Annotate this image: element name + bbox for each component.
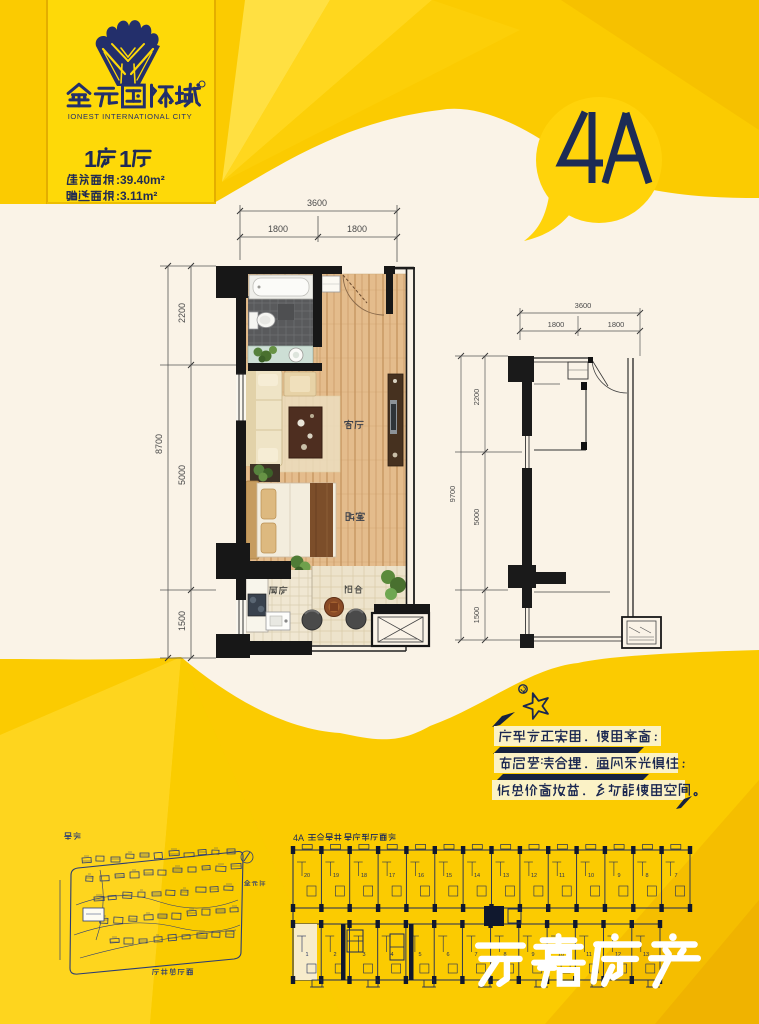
svg-text:17: 17 <box>389 873 395 879</box>
svg-text:5: 5 <box>418 952 421 958</box>
svg-text:6: 6 <box>446 952 449 958</box>
svg-text:8: 8 <box>645 873 648 879</box>
svg-text:4: 4 <box>390 952 393 958</box>
svg-text:5000: 5000 <box>472 509 481 526</box>
svg-text:11: 11 <box>586 952 592 958</box>
svg-text:7: 7 <box>674 873 677 879</box>
svg-text:1800: 1800 <box>608 320 625 329</box>
svg-text:2: 2 <box>333 952 336 958</box>
svg-text:3: 3 <box>362 952 365 958</box>
svg-text:13: 13 <box>503 873 509 879</box>
svg-text:20: 20 <box>304 873 310 879</box>
svg-text:1500: 1500 <box>177 611 187 631</box>
svg-text:1: 1 <box>119 146 132 172</box>
svg-text:1: 1 <box>84 146 97 172</box>
svg-text:9: 9 <box>531 952 534 958</box>
svg-text:14: 14 <box>474 873 480 879</box>
svg-text:10: 10 <box>588 873 594 879</box>
svg-text:11: 11 <box>559 873 565 879</box>
svg-text:16: 16 <box>418 873 424 879</box>
svg-text:9700: 9700 <box>448 486 457 503</box>
svg-text:2200: 2200 <box>177 303 187 323</box>
svg-text:12: 12 <box>531 873 537 879</box>
svg-text:3600: 3600 <box>307 198 327 208</box>
svg-text::3.11m²: :3.11m² <box>116 189 157 203</box>
svg-text:3600: 3600 <box>575 301 592 310</box>
svg-text:18: 18 <box>361 873 367 879</box>
svg-text:1500: 1500 <box>472 607 481 624</box>
svg-text:15: 15 <box>446 873 452 879</box>
svg-text:2200: 2200 <box>472 389 481 406</box>
svg-text:4A: 4A <box>293 833 304 843</box>
svg-text:19: 19 <box>333 873 339 879</box>
svg-text:5000: 5000 <box>177 465 187 485</box>
svg-text::39.40m²: :39.40m² <box>116 173 165 187</box>
svg-text:1: 1 <box>305 952 308 958</box>
svg-text:7: 7 <box>474 952 477 958</box>
svg-text:1800: 1800 <box>347 224 367 234</box>
svg-text:1800: 1800 <box>548 320 565 329</box>
svg-text:8700: 8700 <box>154 434 164 454</box>
svg-text:9: 9 <box>617 873 620 879</box>
svg-text:13: 13 <box>643 952 649 958</box>
svg-text:IONEST INTERNATIONAL CITY: IONEST INTERNATIONAL CITY <box>68 112 193 121</box>
svg-text:1800: 1800 <box>268 224 288 234</box>
